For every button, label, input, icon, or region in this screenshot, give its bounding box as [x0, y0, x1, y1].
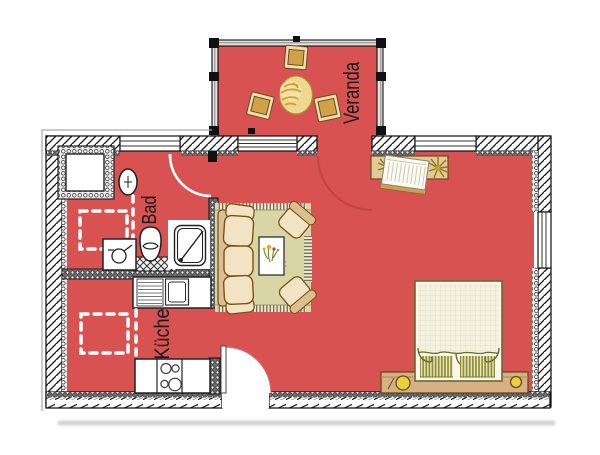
svg-text:Bad: Bad [139, 196, 161, 225]
svg-text:Veranda: Veranda [339, 61, 364, 124]
svg-text:Küche: Küche [150, 309, 174, 360]
